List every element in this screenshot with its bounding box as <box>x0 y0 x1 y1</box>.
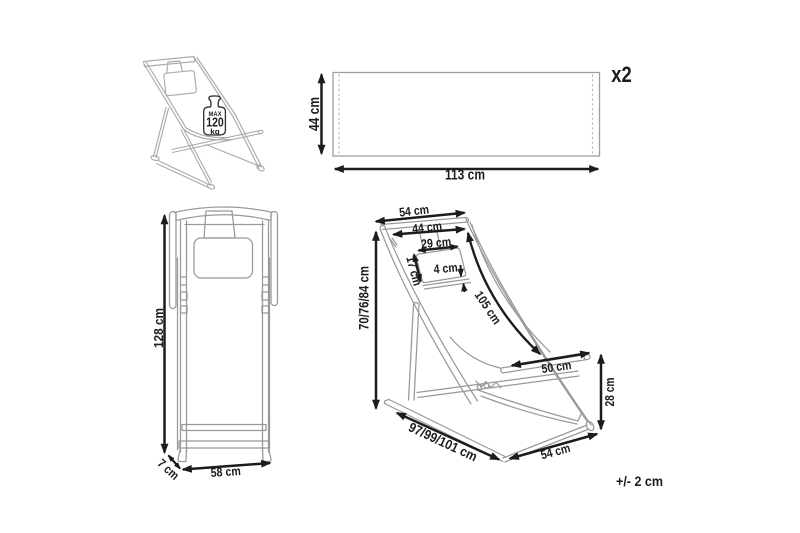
svg-text:4 cm: 4 cm <box>433 260 458 276</box>
svg-text:29 cm: 29 cm <box>421 235 452 252</box>
svg-text:113 cm: 113 cm <box>445 167 485 184</box>
svg-text:x2: x2 <box>611 62 632 87</box>
svg-text:28 cm: 28 cm <box>603 378 617 407</box>
svg-text:+/- 2 cm: +/- 2 cm <box>616 473 663 489</box>
svg-text:70/76/84 cm: 70/76/84 cm <box>356 266 372 330</box>
svg-text:128 cm: 128 cm <box>151 308 166 348</box>
svg-text:kg: kg <box>210 127 220 136</box>
svg-text:58 cm: 58 cm <box>210 464 241 480</box>
svg-text:44 cm: 44 cm <box>411 219 442 236</box>
svg-text:50 cm: 50 cm <box>541 358 573 376</box>
svg-text:54 cm: 54 cm <box>539 441 572 462</box>
svg-text:17 cm: 17 cm <box>403 255 424 288</box>
svg-text:44 cm: 44 cm <box>306 97 323 131</box>
